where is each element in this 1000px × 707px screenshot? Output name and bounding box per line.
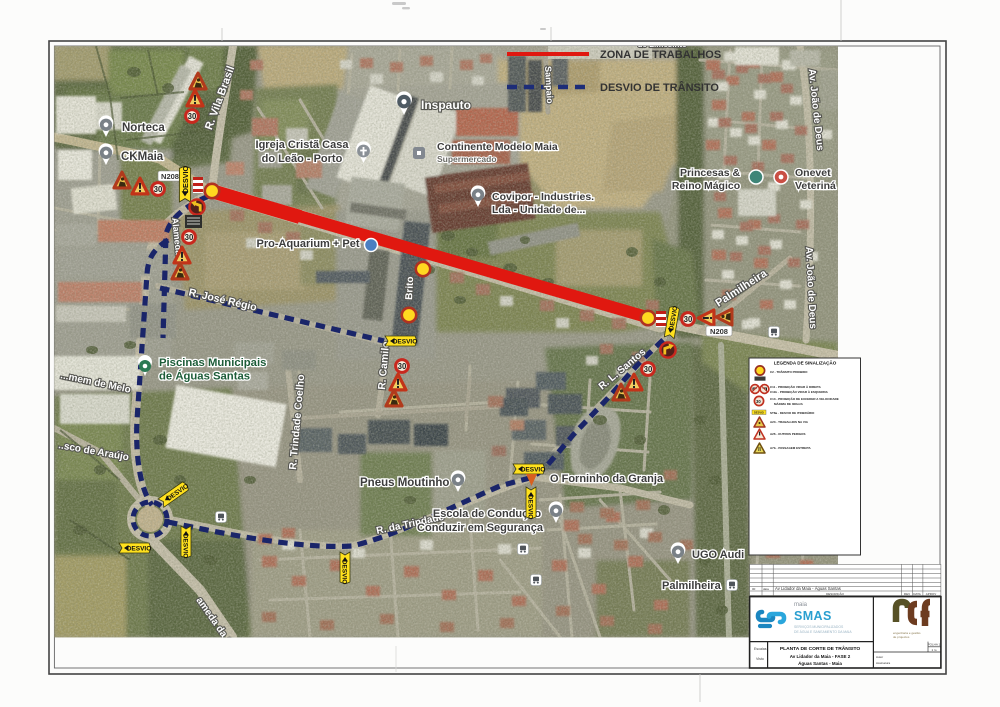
- svg-text:Reino Mágico: Reino Mágico: [672, 180, 740, 192]
- svg-text:Inspauto: Inspauto: [421, 98, 471, 112]
- svg-text:A7b - PASSAGEM ESTREITA: A7b - PASSAGEM ESTREITA: [770, 446, 812, 450]
- svg-text:MÁXIMA DE 30Km/h: MÁXIMA DE 30Km/h: [774, 401, 803, 406]
- svg-text:Covipor - Industries.: Covipor - Industries.: [492, 191, 594, 203]
- svg-text:Sampaio: Sampaio: [543, 66, 555, 104]
- svg-text:N208: N208: [161, 172, 179, 181]
- svg-text:Princesas &: Princesas &: [680, 167, 741, 179]
- svg-text:A26 - OUTROS PERIGOS: A26 - OUTROS PERIGOS: [770, 432, 806, 436]
- svg-text:C11 - PROIBIÇÃO VIRAR À DIREIT: C11 - PROIBIÇÃO VIRAR À DIREITA: [770, 384, 822, 389]
- svg-text:O Forninho da Granja: O Forninho da Granja: [550, 473, 664, 485]
- svg-text:Veteriná: Veteriná: [795, 180, 836, 192]
- svg-text:REV: REV: [904, 592, 910, 596]
- svg-text:00: 00: [752, 587, 756, 591]
- svg-text:SERVIÇOS MUNICIPALIZADOS: SERVIÇOS MUNICIPALIZADOS: [794, 625, 844, 629]
- svg-text:C2 - TRÂNSITO PROIBIDO: C2 - TRÂNSITO PROIBIDO: [770, 369, 808, 374]
- svg-text:LEGENDA DE SINALIZAÇÃO: LEGENDA DE SINALIZAÇÃO: [774, 360, 837, 366]
- svg-text:data: data: [763, 587, 769, 591]
- svg-text:CKMaia: CKMaia: [121, 151, 164, 163]
- svg-text:DESCRIÇÃO: DESCRIÇÃO: [826, 591, 845, 596]
- svg-text:Escalas: Escalas: [754, 647, 767, 651]
- svg-text:Brito: Brito: [404, 276, 416, 300]
- svg-text:1 /o: 1 /o: [931, 648, 936, 652]
- svg-text:Supermercado: Supermercado: [437, 154, 497, 164]
- svg-text:de projectos: de projectos: [893, 635, 910, 639]
- svg-text:DE ÁGUA E SANEAMENTO DA MAIA: DE ÁGUA E SANEAMENTO DA MAIA: [794, 630, 852, 634]
- svg-text:N208: N208: [710, 327, 728, 336]
- svg-text:Continente Modelo Maia: Continente Modelo Maia: [437, 141, 558, 153]
- svg-text:maia: maia: [794, 602, 808, 608]
- svg-text:Av Lidador da Maia - Águas San: Av Lidador da Maia - Águas Santas: [775, 586, 841, 591]
- svg-text:PLANTA DE CORTE DE TRÂNSITO: PLANTA DE CORTE DE TRÂNSITO: [780, 645, 861, 652]
- svg-text:ZONA DE TRABALHOS: ZONA DE TRABALHOS: [600, 49, 721, 61]
- svg-text:Onevet: Onevet: [795, 167, 831, 179]
- svg-text:Conduzir em Segurança: Conduzir em Segurança: [417, 522, 544, 534]
- svg-text:FOLHA 1: FOLHA 1: [928, 643, 941, 647]
- svg-text:DESVIO: DESVIO: [754, 411, 764, 415]
- svg-text:Pneus Moutinho: Pneus Moutinho: [360, 477, 449, 489]
- svg-text:Igreja Cristã Casa: Igreja Cristã Casa: [256, 139, 350, 151]
- svg-text:Palmilheira: Palmilheira: [662, 580, 722, 592]
- svg-text:de Águas Santas: de Águas Santas: [159, 370, 250, 383]
- svg-text:DATA: DATA: [913, 592, 921, 596]
- svg-text:ST8a - DESVIO DE ITINERÁRIO: ST8a - DESVIO DE ITINERÁRIO: [770, 410, 815, 415]
- svg-text:Águas Santas - Maia: Águas Santas - Maia: [798, 660, 842, 666]
- svg-text:30: 30: [756, 399, 761, 404]
- svg-text:APROV: APROV: [926, 592, 937, 596]
- svg-text:Escola de Condução: Escola de Condução: [433, 508, 541, 520]
- svg-text:UGO Audi: UGO Audi: [692, 549, 744, 561]
- svg-text:Lda - Unidade de...: Lda - Unidade de...: [492, 204, 585, 216]
- svg-text:do Leão - Porto: do Leão - Porto: [262, 153, 343, 165]
- svg-text:Visto: Visto: [756, 657, 764, 661]
- svg-text:C11b - PROIBIÇÃO VIRAR À ESQUE: C11b - PROIBIÇÃO VIRAR À ESQUERDA: [770, 389, 829, 394]
- svg-text:Av Lidador da Maia - FASE 2: Av Lidador da Maia - FASE 2: [790, 654, 851, 659]
- svg-text:Pro-Aquarium + Pet: Pro-Aquarium + Pet: [257, 238, 360, 250]
- svg-text:DESVIO DE TRÂNSITO: DESVIO DE TRÂNSITO: [600, 81, 719, 94]
- svg-text:Autor: Autor: [876, 655, 883, 659]
- svg-text:A23 - TRABALHOS NA VIA: A23 - TRABALHOS NA VIA: [770, 420, 809, 424]
- svg-text:Piscinas Municipais: Piscinas Municipais: [159, 357, 266, 369]
- svg-text:C13 - PROIBIÇÃO DE EXCEDER A V: C13 - PROIBIÇÃO DE EXCEDER A VELOCIDADE: [770, 396, 839, 401]
- svg-text:Assinatura: Assinatura: [876, 661, 891, 665]
- svg-text:Norteca: Norteca: [122, 122, 165, 134]
- svg-text:SMAS: SMAS: [794, 609, 832, 623]
